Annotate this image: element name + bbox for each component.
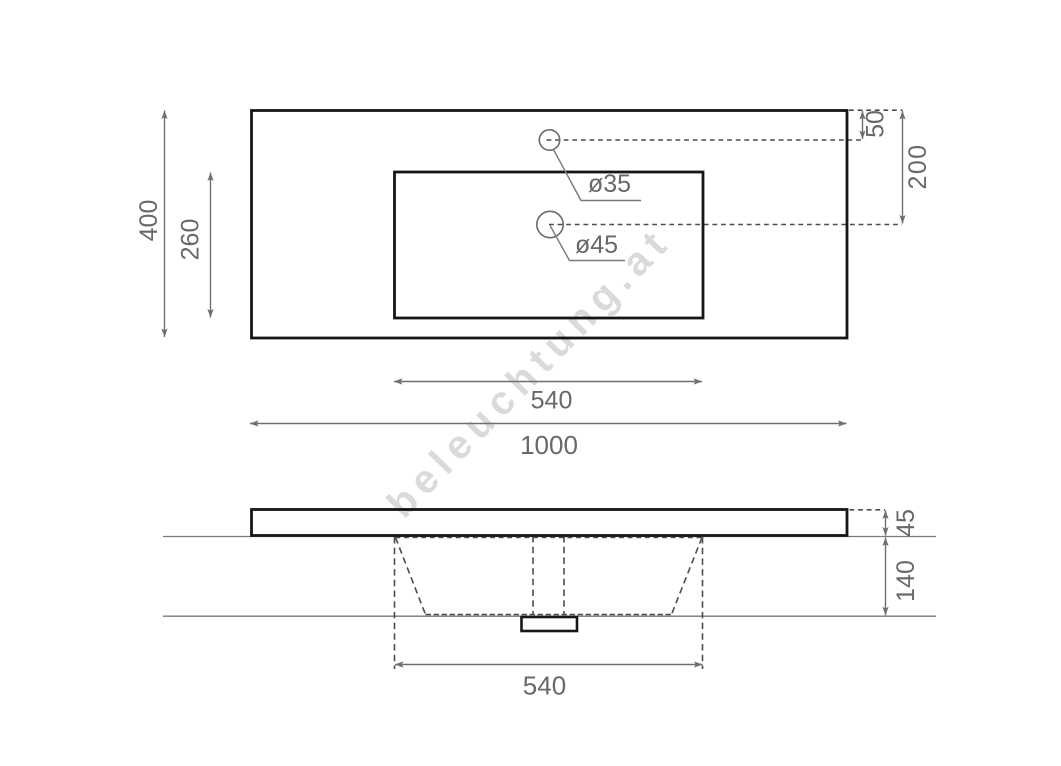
svg-text:260: 260 [177,219,205,261]
svg-text:45: 45 [892,509,920,537]
svg-text:540: 540 [523,671,566,701]
svg-text:200: 200 [904,144,932,190]
svg-text:ø35: ø35 [588,170,631,198]
svg-text:beleuchtung.at: beleuchtung.at [379,218,680,526]
svg-text:50: 50 [862,110,890,138]
svg-text:1000: 1000 [520,430,578,460]
svg-text:400: 400 [135,200,163,242]
svg-text:ø45: ø45 [575,231,618,259]
svg-text:540: 540 [531,387,573,415]
svg-text:140: 140 [892,560,920,602]
